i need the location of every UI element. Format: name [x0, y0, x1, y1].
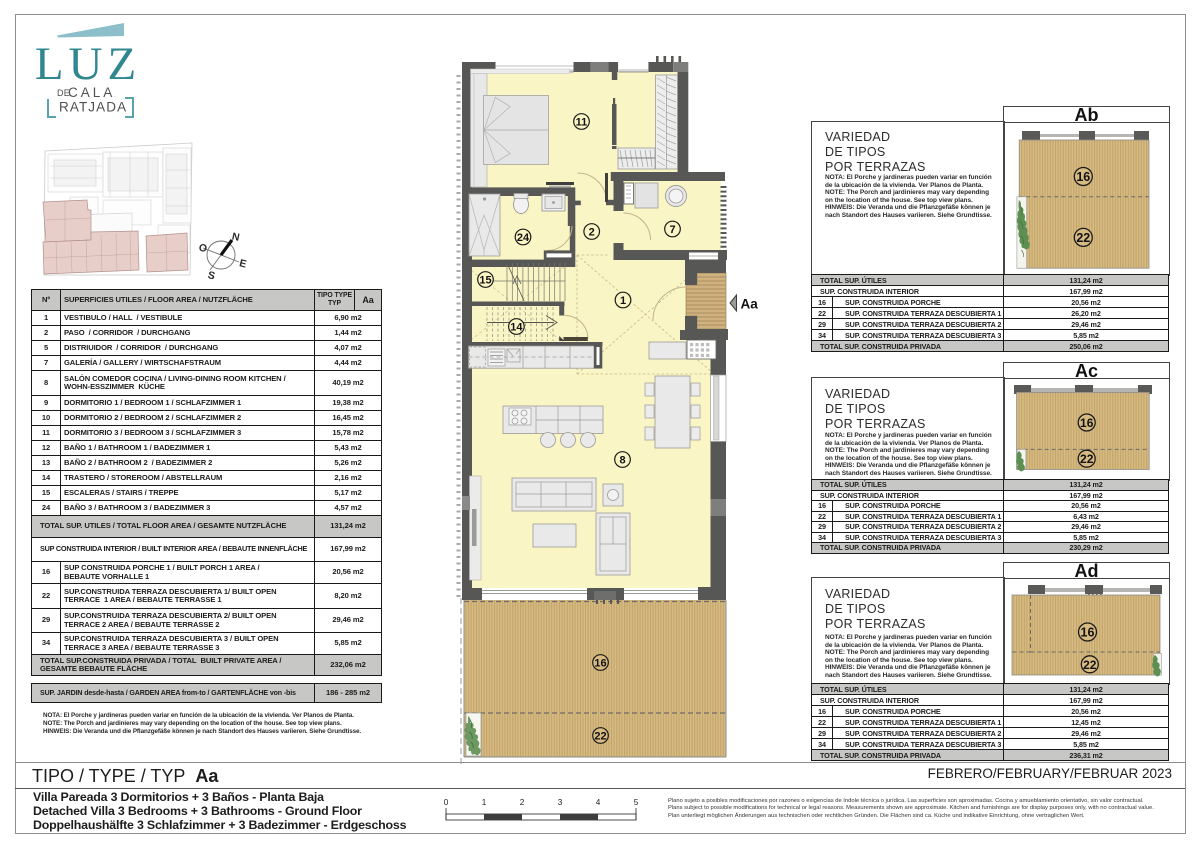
svg-text:16: 16 [1081, 626, 1095, 640]
svg-text:8: 8 [619, 455, 625, 467]
svg-text:7: 7 [669, 224, 675, 236]
svg-text:S: S [206, 269, 216, 282]
svg-text:16: 16 [594, 658, 606, 670]
svg-text:N: N [231, 231, 241, 244]
svg-text:1: 1 [620, 295, 626, 307]
svg-text:22: 22 [1080, 452, 1094, 466]
svg-text:2: 2 [520, 798, 525, 807]
svg-text:CALA: CALA [68, 85, 115, 100]
svg-text:E: E [238, 257, 248, 270]
svg-text:5: 5 [634, 798, 639, 807]
svg-text:Aa: Aa [741, 297, 759, 312]
svg-text:22: 22 [594, 731, 606, 743]
svg-text:LUZ: LUZ [35, 38, 141, 90]
svg-text:22: 22 [1083, 658, 1097, 672]
svg-text:16: 16 [1076, 170, 1090, 184]
svg-text:RATJADA: RATJADA [59, 100, 127, 115]
svg-text:3: 3 [558, 798, 563, 807]
svg-text:15: 15 [479, 275, 491, 287]
svg-text:4: 4 [596, 798, 601, 807]
svg-text:0: 0 [444, 798, 449, 807]
svg-text:22: 22 [1076, 231, 1090, 245]
svg-text:O: O [198, 242, 208, 255]
svg-text:11: 11 [576, 117, 588, 129]
svg-text:1: 1 [482, 798, 487, 807]
svg-text:16: 16 [1080, 416, 1094, 430]
svg-text:24: 24 [517, 232, 530, 244]
svg-text:2: 2 [589, 227, 595, 239]
svg-text:14: 14 [510, 322, 523, 334]
